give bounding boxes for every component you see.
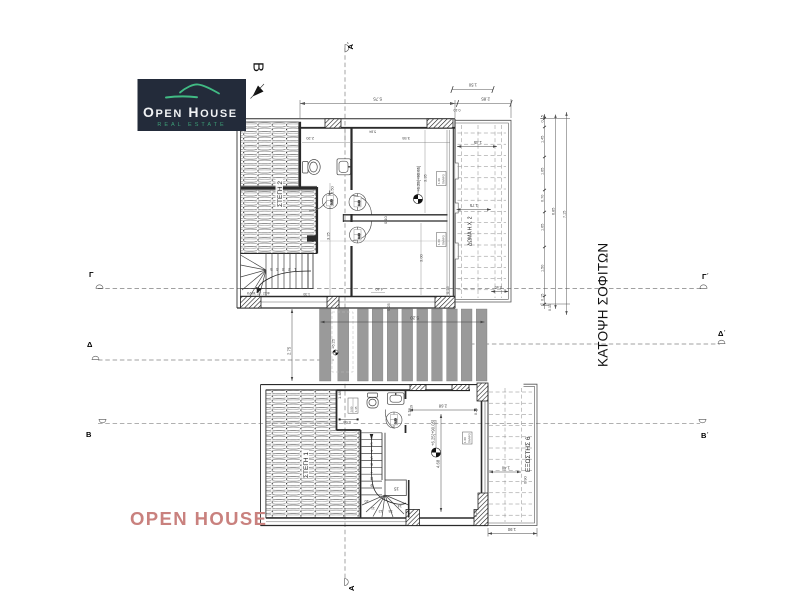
svg-text:ΔΩΜΑ Η.Χ. 2: ΔΩΜΑ Η.Χ. 2 <box>468 216 474 246</box>
svg-text:6.85: 6.85 <box>552 208 556 215</box>
svg-text:0.19: 0.19 <box>407 407 412 416</box>
svg-text:3.55: 3.55 <box>401 136 410 141</box>
svg-text:1.75: 1.75 <box>469 203 478 208</box>
svg-text:2.85: 2.85 <box>481 97 490 102</box>
svg-text:12: 12 <box>378 509 383 514</box>
svg-text:1.35: 1.35 <box>354 406 358 412</box>
svg-text:2.68: 2.68 <box>438 404 447 409</box>
svg-text:2.20: 2.20 <box>305 136 314 141</box>
svg-text:Α΄: Α΄ <box>346 42 355 50</box>
svg-text:Δ: Δ <box>87 340 93 349</box>
svg-text:0.15: 0.15 <box>541 294 545 301</box>
svg-text:0.10: 0.10 <box>383 215 388 224</box>
svg-text:+6.25: +6.25 <box>331 338 336 349</box>
svg-text:ΣΤΕΓΗ 1: ΣΤΕΓΗ 1 <box>303 452 310 478</box>
svg-text:0.25: 0.25 <box>445 285 450 294</box>
svg-text:1.90: 1.90 <box>507 527 516 532</box>
svg-text:0.25: 0.25 <box>474 510 478 517</box>
svg-text:13: 13 <box>388 509 393 514</box>
svg-text:0.25: 0.25 <box>474 408 478 415</box>
svg-text:ΚΑΤΟΨΗ ΣΟΦΙΤΩΝ: ΚΑΤΟΨΗ ΣΟΦΙΤΩΝ <box>596 243 611 367</box>
svg-text:ΕΞΩΣΤΗΣ 6: ΕΞΩΣΤΗΣ 6 <box>525 436 532 472</box>
svg-text:0.90: 0.90 <box>394 418 398 424</box>
svg-text:1.65: 1.65 <box>541 224 545 231</box>
svg-text:+6.25(+90.65): +6.25(+90.65) <box>416 165 421 192</box>
svg-text:0.90: 0.90 <box>330 199 334 205</box>
svg-text:1.50: 1.50 <box>541 265 545 272</box>
svg-text:ΠΑΡ/ΡΟ: ΠΑΡ/ΡΟ <box>468 433 472 443</box>
svg-text:ΚΛΙΜ. ΣΤ. 2ΧΦ: ΚΛΙΜ. ΣΤ. 2ΧΦ <box>247 292 270 296</box>
svg-text:Γ΄: Γ΄ <box>702 272 709 281</box>
svg-text:3.25: 3.25 <box>326 231 331 240</box>
svg-text:Β: Β <box>250 62 267 72</box>
svg-text:15: 15 <box>393 487 399 492</box>
svg-text:0.70: 0.70 <box>541 195 545 202</box>
svg-text:1.48: 1.48 <box>337 390 342 399</box>
svg-text:0.90: 0.90 <box>357 200 361 206</box>
svg-text:10: 10 <box>364 499 369 504</box>
svg-text:0.25: 0.25 <box>386 302 391 311</box>
svg-text:Α: Α <box>347 585 356 591</box>
svg-text:0.10: 0.10 <box>454 108 461 112</box>
svg-text:0.10: 0.10 <box>548 304 552 311</box>
svg-text:1.50: 1.50 <box>468 83 477 88</box>
svg-text:Γ: Γ <box>89 270 94 279</box>
svg-text:+6.25(+90.05): +6.25(+90.05) <box>431 419 436 446</box>
svg-text:0.90: 0.90 <box>350 406 354 412</box>
svg-text:1.45: 1.45 <box>541 136 545 143</box>
svg-text:14: 14 <box>397 504 402 509</box>
svg-text:Β΄: Β΄ <box>701 431 709 440</box>
svg-text:1.30: 1.30 <box>303 292 310 296</box>
svg-text:0.90: 0.90 <box>523 475 528 484</box>
svg-text:0.90: 0.90 <box>495 285 502 289</box>
svg-text:1.65: 1.65 <box>541 168 545 175</box>
svg-text:ΠΑΡ/ΡΟ: ΠΑΡ/ΡΟ <box>442 235 446 245</box>
svg-text:5.75: 5.75 <box>373 97 382 102</box>
svg-text:2.75: 2.75 <box>287 346 292 355</box>
svg-text:5.84: 5.84 <box>369 130 376 134</box>
svg-text:1.60: 1.60 <box>463 437 467 443</box>
svg-text:Δ΄: Δ΄ <box>718 329 726 338</box>
svg-text:4.40: 4.40 <box>374 287 383 292</box>
svg-text:7.15: 7.15 <box>563 211 567 218</box>
svg-text:ΣΤΕΓΗ 2: ΣΤΕΓΗ 2 <box>277 181 284 207</box>
svg-text:5.20: 5.20 <box>410 316 419 321</box>
svg-text:1.60: 1.60 <box>437 178 441 184</box>
svg-text:0.50: 0.50 <box>330 185 335 194</box>
svg-text:0.90: 0.90 <box>357 233 361 239</box>
svg-text:REAL ESTATE: REAL ESTATE <box>157 122 226 128</box>
svg-text:0.15: 0.15 <box>541 115 545 122</box>
svg-text:1.45: 1.45 <box>473 140 482 145</box>
svg-text:1.40: 1.40 <box>501 466 510 471</box>
svg-text:Β: Β <box>86 430 92 439</box>
svg-text:ΠΑΡ/ΡΟ: ΠΑΡ/ΡΟ <box>442 174 446 184</box>
svg-text:1.60: 1.60 <box>437 239 441 245</box>
svg-text:0.65: 0.65 <box>342 420 351 425</box>
svg-text:4.68: 4.68 <box>436 459 441 468</box>
svg-text:OPEN HOUSE: OPEN HOUSE <box>130 508 267 529</box>
